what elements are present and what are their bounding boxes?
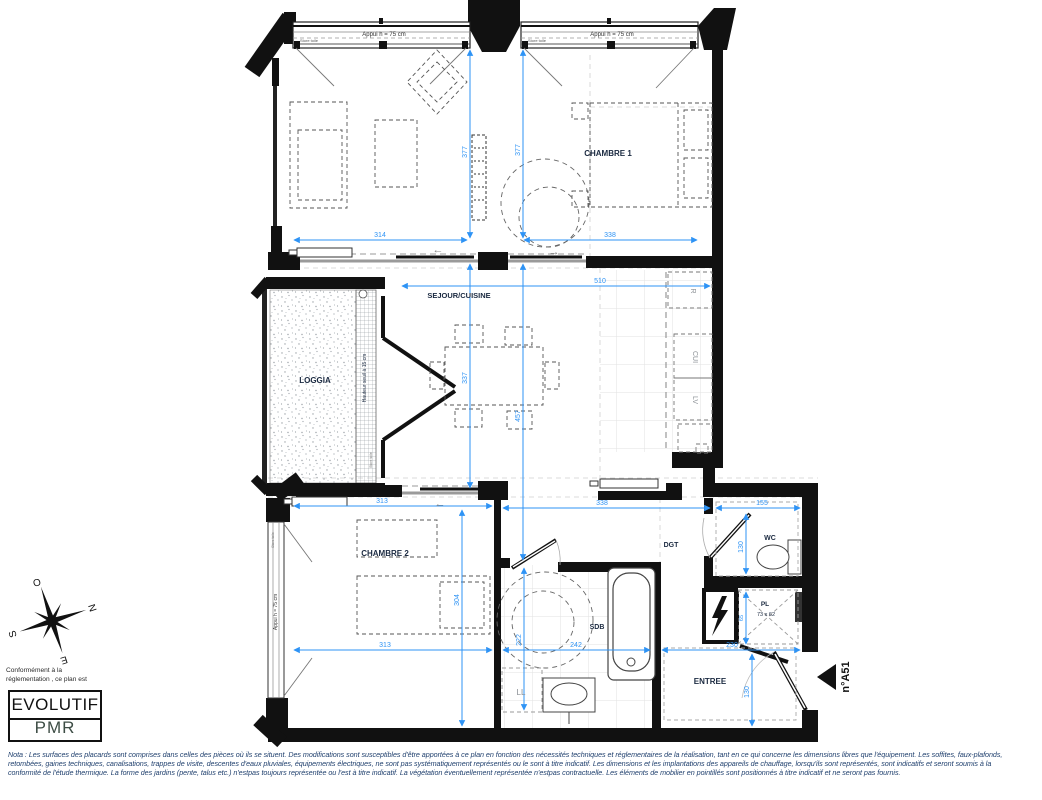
compass-rose: O N S E [7,577,98,666]
placard-size-label: 73 x 62 [757,612,775,618]
entrance-opening [802,652,818,710]
compass-west-label: O [32,577,43,590]
room-label-loggia: LOGGIA [299,376,331,385]
footnote: Nota : Les surfaces des placards sont co… [8,750,1038,777]
dim-222: 222 [516,634,523,646]
legend-intro: Conformément à la réglementation , ce pl… [6,666,87,684]
chambre2-window-sill-label: Appui h = 75 cm [273,594,279,630]
dim-155: 155 [756,500,768,507]
dim-313-top: 313 [376,498,388,505]
dim-377-left: 377 [462,146,469,158]
dim-65: 65 [739,615,745,621]
dim-510: 510 [594,278,606,285]
furniture-table-sejour [430,325,559,429]
slide-arrow-left-icon: ← [433,244,444,256]
compass-east-label: E [59,653,69,666]
compass-south-label: S [7,629,20,639]
bathtub [608,568,655,680]
dim-130-entree: 130 [744,686,751,698]
dim-377-right: 377 [515,144,522,156]
footnote-line3: conformité de l'étude thermique. La form… [8,768,1038,777]
furniture-chambre2 [357,520,490,634]
pmr-badge: PMR [8,716,102,742]
dim-338-top: 338 [604,232,616,239]
electrical-closet [704,590,736,642]
window2-sill-label: Appui h = 75 cm [590,32,634,38]
room-label-wc: WC [764,535,776,542]
room-label-sejour: SEJOUR/CUISINE [427,291,490,300]
room-label-pl: PL [761,601,769,608]
toilet [757,540,801,574]
pmr-circle-chambre1 [501,159,589,247]
dim-337: 337 [462,372,469,384]
window1-sill-label: Appui h = 75 cm [362,32,406,38]
window1-blind-label: Store toile [300,38,319,43]
dim-314: 314 [374,232,386,239]
room-label-chambre2: CHAMBRE 2 [361,549,409,558]
loggia-blind-label: Store toile [369,452,373,468]
washer-label: LL [517,688,526,697]
dim-230: 230 [726,642,738,649]
footnote-line2: retombées, gaines techniques, canalisati… [8,759,1038,768]
room-label-chambre1: CHAMBRE 1 [584,149,632,158]
plan-marker-arrow-icon [817,664,836,690]
dim-313-bottom: 313 [379,642,391,649]
window2-blind-label: Store toile [528,38,547,43]
dim-338-bottom: 338 [596,500,608,507]
floor-plan-page: 314 338 510 377 377 337 457 313 338 155 … [0,0,1042,800]
room-label-dgt: DGT [664,542,680,549]
dim-457: 457 [515,410,522,422]
dim-130-wc: 130 [738,541,745,553]
legend-intro-line1: Conformément à la [6,666,87,675]
chambre2-window-blind-label: Store toile [271,532,275,548]
footnote-line1: Nota : Les surfaces des placards sont co… [8,750,1038,759]
dishwasher-label: LV [691,396,698,404]
fridge-label: R [689,288,696,293]
slide-arrows: ← → ← [433,244,560,510]
legend-intro-line2: réglementation , ce plan est [6,675,87,684]
evolutif-label: EVOLUTIF [11,695,98,715]
pmr-label: PMR [35,718,76,738]
room-label-entree: ENTREE [694,677,727,686]
cooktop-label: CUI [691,351,698,363]
loggia-floor [270,290,356,483]
slide-arrow-left2-icon: ← [435,498,446,510]
loggia-threshold-label: Hauteur seuil à 15 cm [362,354,368,403]
compass-north-label: N [85,603,98,613]
room-label-sdb: SDB [590,624,605,631]
compass-star-icon [20,587,87,654]
plan-marker: n°A51 [817,661,852,692]
plan-marker-label: n°A51 [840,661,852,692]
loggia-drain [359,290,367,298]
slide-arrow-right-icon: → [549,246,560,258]
dim-304: 304 [454,594,461,606]
sdb-door [512,540,560,568]
dim-242: 242 [570,642,582,649]
floor-plan-drawing: 314 338 510 377 377 337 457 313 338 155 … [0,0,1042,800]
window-casements [296,48,694,88]
